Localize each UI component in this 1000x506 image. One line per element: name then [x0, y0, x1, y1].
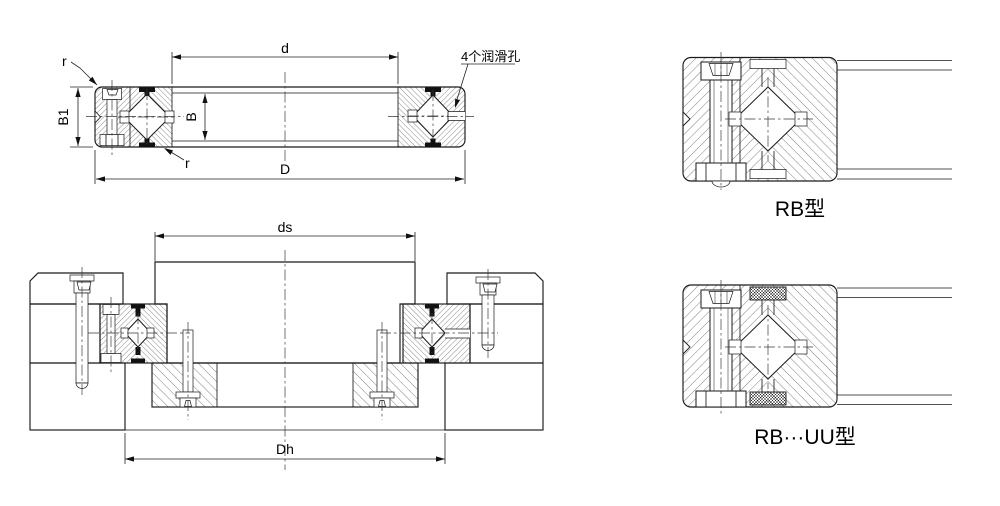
cover-bolt-left: [70, 267, 94, 398]
bearing-drawing-svg: d D B B1 r: [0, 0, 1000, 506]
lube-hole: [448, 112, 465, 121]
lube-note-label: 4个润滑孔: [461, 49, 520, 64]
rb-type-label: RB型: [775, 198, 825, 221]
rbuu-type-label: RB···UU型: [754, 426, 855, 449]
dim-Dh: Dh: [125, 433, 445, 464]
dim-B1: B1: [55, 87, 93, 147]
cover-bolt-right: [476, 269, 500, 360]
dim-B: B: [183, 94, 208, 140]
dim-B1-label: B1: [55, 108, 71, 125]
bearing-section-right: [403, 304, 470, 363]
radius-bottom-label: r: [185, 155, 190, 171]
housing-left: [30, 304, 100, 363]
mounting-section-view: ds Dh: [30, 219, 543, 470]
bearing-drawing-page: d D B B1 r: [0, 0, 1000, 506]
dim-D-label: D: [280, 161, 290, 177]
radius-callout-bottom: r: [164, 148, 190, 171]
dim-Dh-label: Dh: [276, 441, 294, 457]
main-section-view: d D B B1 r: [55, 40, 520, 184]
housing-right: [470, 304, 543, 363]
housing-base-right: [445, 363, 543, 430]
dim-B-label: B: [183, 112, 199, 121]
dim-d-label: d: [281, 40, 289, 56]
dim-D: D: [95, 150, 465, 184]
rb-detail-view: RB型: [683, 52, 952, 221]
radius-callout-top: r: [62, 53, 97, 85]
rbuu-detail-view: RB···UU型: [683, 280, 952, 449]
radius-top-label: r: [62, 53, 67, 69]
dim-ds-label: ds: [278, 219, 293, 235]
bearing-section-left: [100, 297, 167, 372]
